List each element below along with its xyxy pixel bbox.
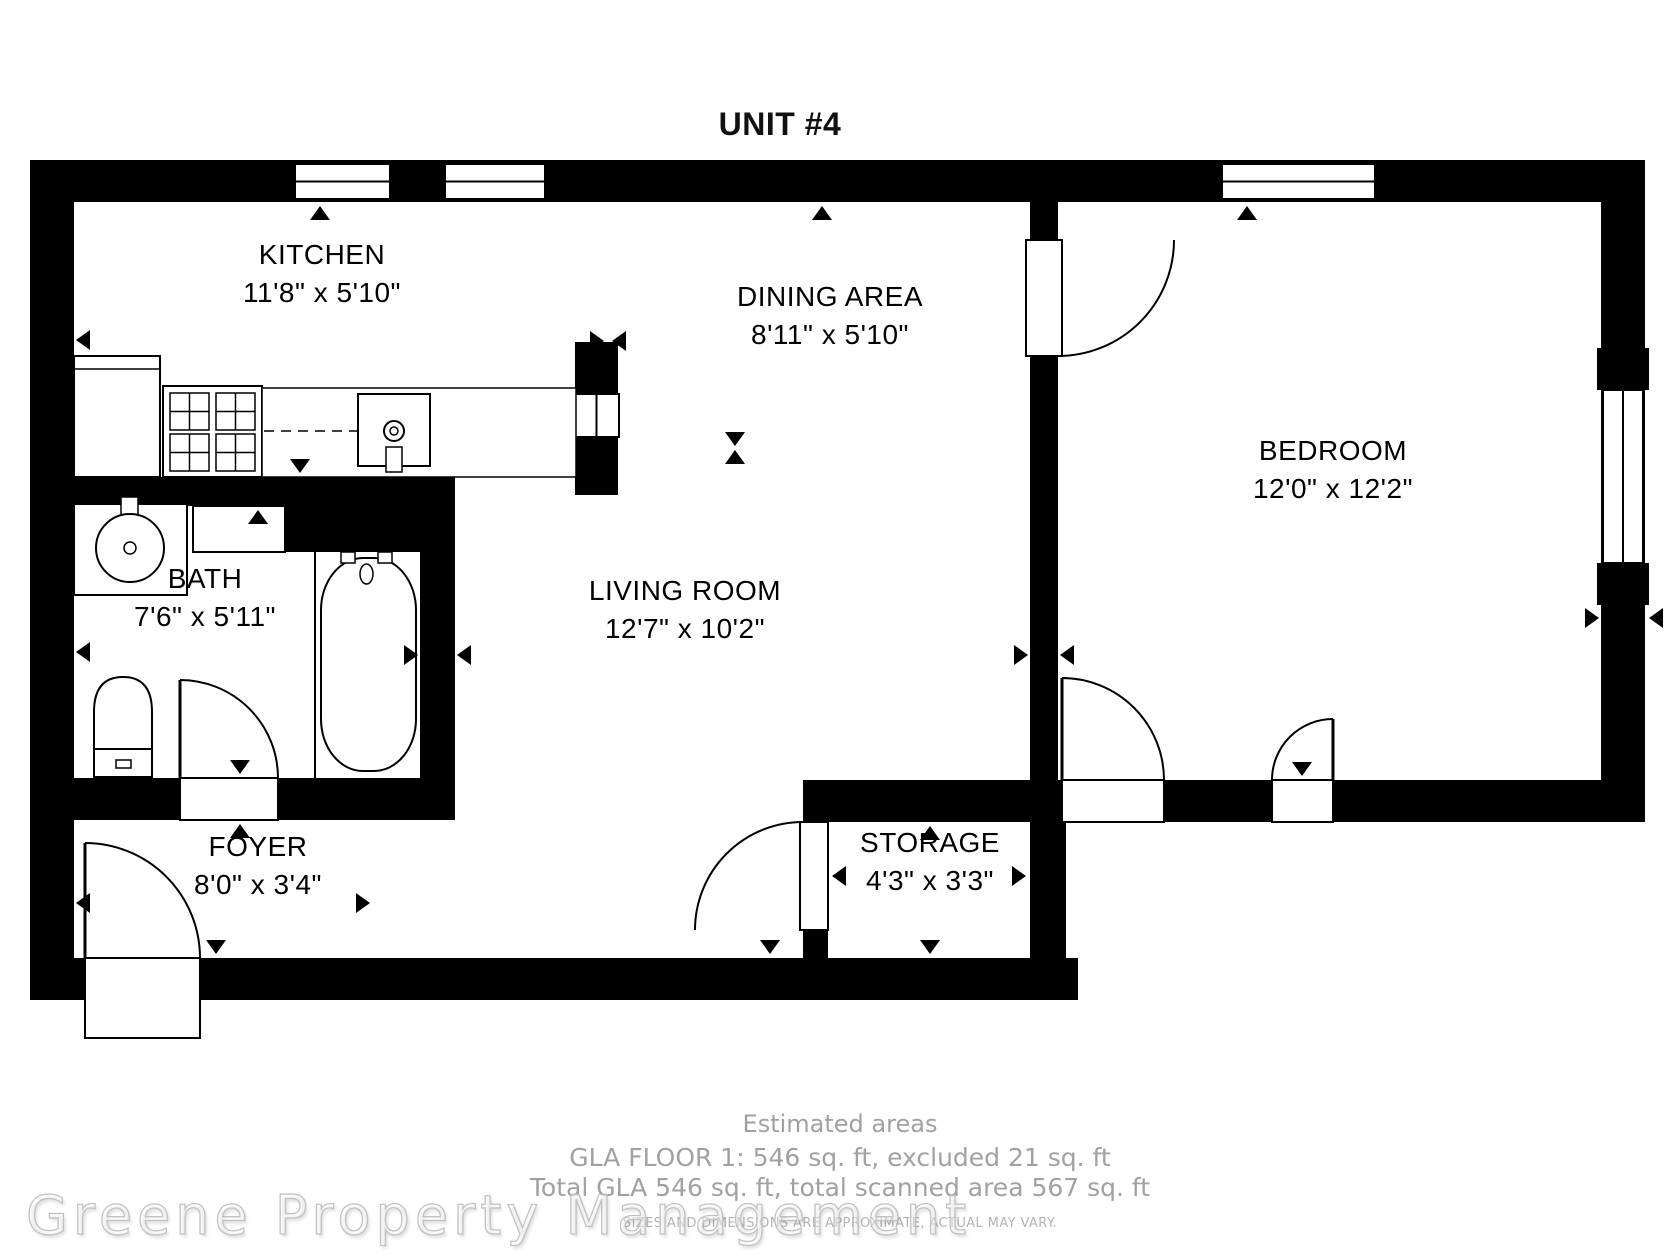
room-name: BEDROOM [1253,432,1413,470]
room-dims: 4'3" x 3'3" [860,862,1000,900]
room-label-kitchen: KITCHEN 11'8" x 5'10" [243,236,401,312]
bedroom-exterior-door [1062,678,1164,822]
room-label-storage: STORAGE 4'3" x 3'3" [860,824,1000,900]
stove [163,386,262,477]
marker-down-storagedoor [760,940,780,954]
room-name: KITCHEN [243,236,401,274]
marker-left-storage [832,866,846,886]
bedroom-entry-door [1026,240,1174,356]
room-label-foyer: FOYER 8'0" x 3'4" [194,828,322,904]
marker-down-closet [1292,762,1312,776]
marker-up-dining [812,206,832,220]
room-name: LIVING ROOM [589,572,781,610]
marker-right-divider [1014,645,1028,665]
gla-floor-line: GLA FLOOR 1: 546 sq. ft, excluded 21 sq.… [0,1143,1680,1172]
marker-left-bathwall [457,645,471,665]
estimated-areas-label: Estimated areas [0,1110,1680,1138]
room-label-bedroom: BEDROOM 12'0" x 12'2" [1253,432,1413,508]
toilet [94,677,152,777]
window-kitchen-passthrough [574,394,619,437]
floor-plan-page: UNIT #4 KITCHEN 11'8" x 5'10" DINING ARE… [0,0,1680,1260]
window-bedroom-top [1222,164,1375,199]
storage-door [695,822,828,930]
marker-down-bathdoor [230,760,250,774]
marker-right-bedroom [1585,608,1599,628]
company-watermark: Greene Property Management [26,1184,971,1247]
bathtub [315,552,416,778]
kitchen-sink [358,394,430,472]
marker-left-bath [76,642,90,662]
room-dims: 12'7" x 10'2" [589,610,781,648]
marker-hourglass-dining-u [725,450,745,464]
room-name: STORAGE [860,824,1000,862]
marker-right-foyer [356,893,370,913]
window-kitchen-2 [445,164,545,199]
room-dims: 11'8" x 5'10" [243,274,401,312]
room-name: FOYER [194,828,322,866]
marker-up-kitchen [310,206,330,220]
marker-up-bedroom [1237,206,1257,220]
bath-door [180,680,278,820]
window-bedroom-right [1603,390,1643,563]
bath-niche [193,506,285,552]
kitchen-fixtures [74,356,576,477]
room-dims: 7'6" x 5'11" [134,598,276,636]
marker-left-kitchen [76,330,90,350]
marker-down-foyer [206,940,226,954]
windows [295,164,1643,563]
room-name: BATH [134,560,276,598]
unit-entry-door [85,843,200,1038]
room-label-bath: BATH 7'6" x 5'11" [134,560,276,636]
window-kitchen-1 [295,164,390,199]
room-label-living-room: LIVING ROOM 12'7" x 10'2" [589,572,781,648]
page-title: UNIT #4 [719,106,842,143]
marker-right-storage [1012,866,1026,886]
room-dims: 8'11" x 5'10" [737,316,923,354]
marker-left-foyer [76,893,90,913]
marker-left-divider [1060,645,1074,665]
room-dims: 12'0" x 12'2" [1253,470,1413,508]
room-dims: 8'0" x 3'4" [194,866,322,904]
room-label-dining: DINING AREA 8'11" x 5'10" [737,278,923,354]
marker-left-bedroom [1649,608,1663,628]
room-name: DINING AREA [737,278,923,316]
refrigerator [74,356,160,477]
marker-down-storage [920,940,940,954]
marker-hourglass-dining-d [725,432,745,446]
